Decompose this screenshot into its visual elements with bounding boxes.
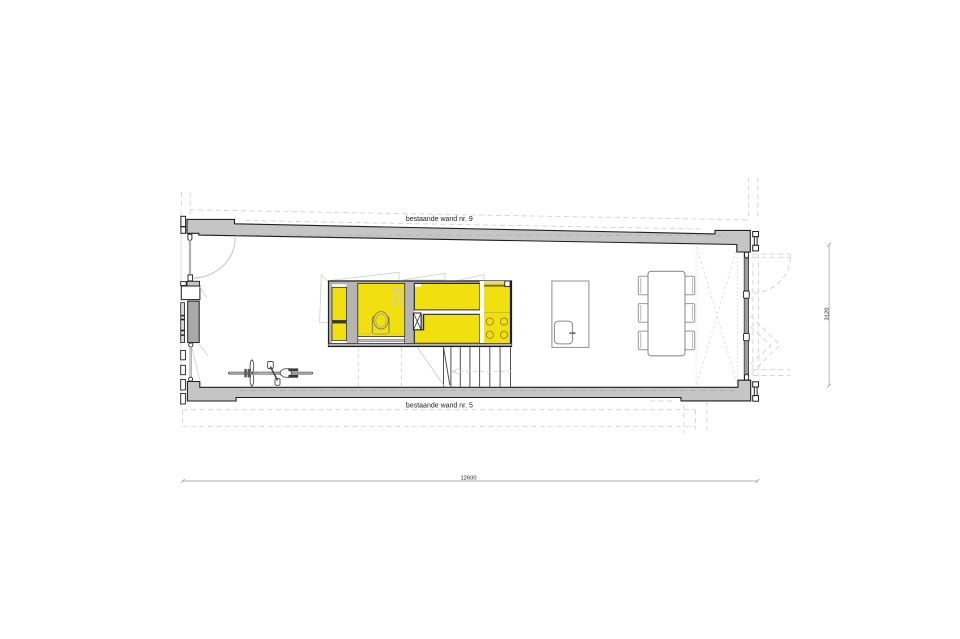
svg-text:12600: 12600	[460, 475, 476, 481]
svg-text:bestaande wand nr. 5: bestaande wand nr. 5	[406, 403, 473, 410]
svg-text:bestaande wand nr. 9: bestaande wand nr. 9	[406, 216, 473, 223]
